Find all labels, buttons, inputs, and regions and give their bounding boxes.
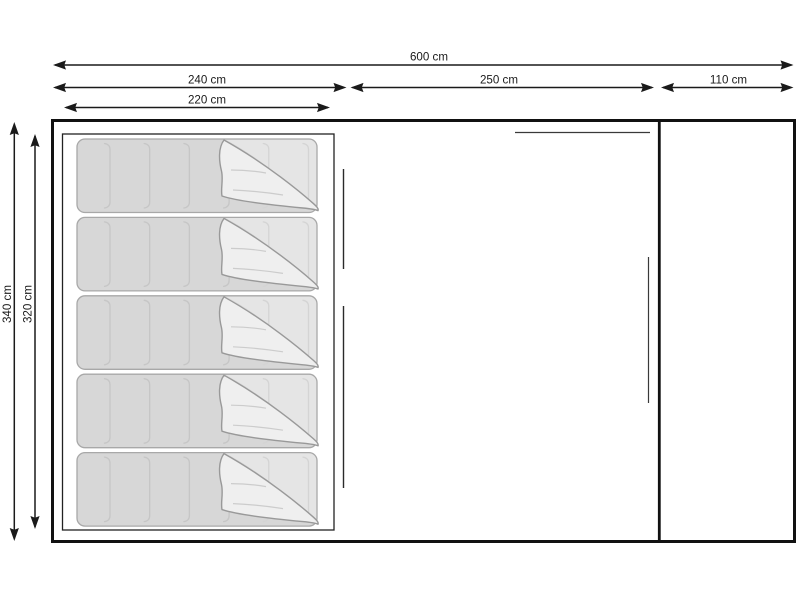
svg-text:220 cm: 220 cm xyxy=(188,94,226,107)
svg-text:600 cm: 600 cm xyxy=(410,51,448,64)
svg-text:320 cm: 320 cm xyxy=(22,285,35,323)
svg-text:250 cm: 250 cm xyxy=(480,74,518,87)
svg-text:240 cm: 240 cm xyxy=(188,74,226,87)
svg-text:340 cm: 340 cm xyxy=(1,285,14,323)
svg-text:110 cm: 110 cm xyxy=(710,74,747,87)
